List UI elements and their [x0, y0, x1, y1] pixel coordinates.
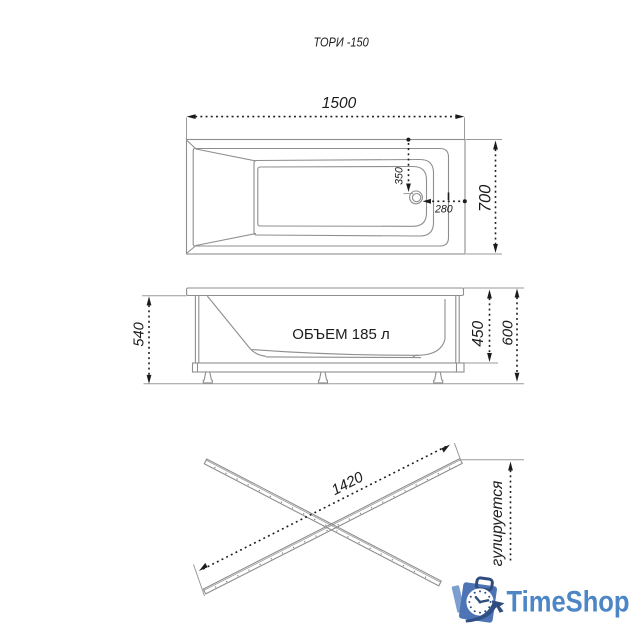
svg-text:540: 540: [132, 321, 148, 346]
svg-text:ТОРИ -150: ТОРИ -150: [314, 34, 370, 49]
svg-text:TimeShop: TimeShop: [507, 585, 630, 618]
svg-text:280: 280: [434, 203, 453, 215]
svg-text:1500: 1500: [322, 95, 357, 112]
svg-text:ОБЪЕМ 185 л: ОБЪЕМ 185 л: [292, 326, 390, 343]
svg-text:700: 700: [477, 184, 495, 212]
svg-text:600: 600: [500, 320, 517, 346]
svg-text:350: 350: [394, 167, 406, 185]
svg-text:450: 450: [470, 320, 487, 346]
svg-text:гулируется: гулируется: [489, 481, 506, 567]
